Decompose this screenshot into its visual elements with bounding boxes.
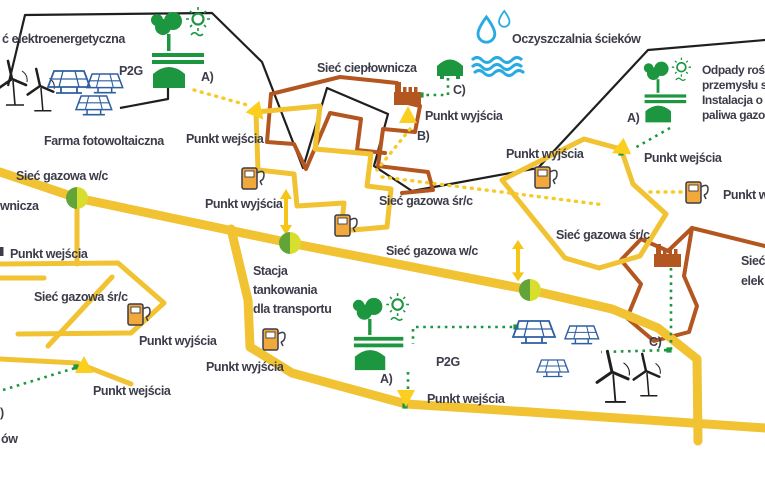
wind-turbine-icon bbox=[597, 351, 629, 402]
label-exit-point: Punkt wyjścia bbox=[139, 334, 218, 348]
label-entry-point: Punkt wejścia bbox=[93, 384, 172, 398]
label-station-line3: dla transportu bbox=[253, 302, 331, 316]
label-exit-point: Punkt wyjścia bbox=[425, 109, 504, 123]
label-heat-fragment: wnicza bbox=[0, 199, 40, 213]
gas-pump-icon bbox=[535, 167, 557, 188]
label-src-network-right: Sieć gazowa śr/c bbox=[556, 228, 650, 242]
label-entry-point: Punkt wejścia bbox=[644, 151, 723, 165]
label-waste-line4: paliwa gazo bbox=[702, 108, 765, 122]
gas-pump-icon bbox=[263, 329, 285, 350]
label-src-network-center: Sieć gazowa śr/c bbox=[379, 194, 473, 208]
water-drop-icon bbox=[478, 17, 495, 42]
sewage-plant-icon bbox=[437, 60, 463, 80]
label-entry-point: Punkt wejścia bbox=[10, 247, 89, 261]
label-waste-line3: Instalacja o bbox=[702, 93, 763, 107]
diagram-canvas: ć elektroenergetyczna P2G Farma fotowolt… bbox=[0, 0, 765, 496]
solar-panel-icon bbox=[537, 360, 569, 377]
gas-wc-trunk-top bbox=[0, 172, 698, 441]
water-drop-icon bbox=[499, 11, 510, 27]
green-terminal-icon bbox=[666, 347, 671, 352]
gas-pump-icon bbox=[242, 168, 264, 189]
label-marker-a-right: A) bbox=[627, 111, 640, 125]
label-entry-point: Punkt wejścia bbox=[427, 392, 506, 406]
label-pv-farm: Farma fotowoltaiczna bbox=[44, 134, 165, 148]
wind-turbine-icon bbox=[28, 69, 55, 111]
label-marker-b-top: B) bbox=[417, 129, 430, 143]
label-marker-a-top: A) bbox=[201, 70, 214, 84]
label-entry-point: Punkt wejścia bbox=[186, 132, 265, 146]
gas-pump-icon bbox=[686, 182, 708, 203]
network-node-icon bbox=[66, 187, 88, 209]
double-arrow-icon bbox=[512, 240, 524, 281]
label-p2g-bottom: P2G bbox=[436, 355, 460, 369]
label-electric-right-line2: elek bbox=[741, 274, 764, 288]
label-fragment-ow: ów bbox=[1, 432, 18, 446]
label-station-line1: Stacja bbox=[253, 264, 289, 278]
label-fragment-paren: ) bbox=[0, 406, 4, 420]
label-electric-right-line1: Sieć bbox=[741, 254, 765, 268]
label-exit-point: Punkt wyjścia bbox=[205, 197, 284, 211]
entry-exit-triangle-icon bbox=[399, 106, 417, 123]
network-node-icon bbox=[519, 279, 541, 301]
label-exit-point: Punkt wyjścia bbox=[506, 147, 585, 161]
gas-network-diagram: ć elektroenergetyczna P2G Farma fotowolt… bbox=[0, 0, 765, 496]
solar-panel-icon bbox=[87, 74, 123, 93]
label-marker-c-top: C) bbox=[453, 83, 466, 97]
solar-panel-icon bbox=[48, 71, 90, 93]
factory-icon bbox=[654, 244, 681, 267]
wind-turbine-icon bbox=[0, 61, 27, 105]
label-electric-network: ć elektroenergetyczna bbox=[2, 32, 126, 46]
waves-icon bbox=[472, 58, 524, 76]
solar-panel-icon bbox=[76, 96, 112, 115]
network-node-icon bbox=[279, 232, 301, 254]
entry-exit-triangle-icon bbox=[608, 138, 631, 161]
label-wc-network-left: Sieć gazowa w/c bbox=[16, 169, 108, 183]
gas-pump-icon bbox=[335, 215, 357, 236]
biogas-plant-icon bbox=[644, 58, 691, 123]
label-waste-line2: przemysłu s bbox=[702, 78, 765, 92]
label-wc-network-center: Sieć gazowa w/c bbox=[386, 244, 478, 258]
biogas-plant-icon bbox=[353, 293, 409, 370]
label-p2g-top: P2G bbox=[119, 64, 143, 78]
solar-panel-icon bbox=[565, 326, 599, 344]
solar-panel-icon bbox=[513, 321, 555, 343]
label-exit-point: Punkt wyjścia bbox=[206, 360, 285, 374]
label-src-network-left: Sieć gazowa śr/c bbox=[34, 290, 128, 304]
cut-marker-fragment bbox=[0, 247, 4, 256]
label-exit-point-cut: Punkt wyj bbox=[723, 188, 765, 202]
factory-icon bbox=[394, 82, 421, 105]
pv-to-p2g-line bbox=[120, 88, 168, 108]
label-marker-a-bottom: A) bbox=[380, 372, 393, 386]
label-heat-network: Sieć ciepłownicza bbox=[317, 61, 418, 75]
wind-turbine-icon bbox=[634, 354, 661, 396]
label-station-line2: tankowania bbox=[253, 283, 319, 297]
double-arrow-icon bbox=[280, 189, 292, 235]
label-marker-c-right: C) bbox=[649, 335, 662, 349]
label-sewage-plant: Oczyszczalnia ścieków bbox=[512, 32, 641, 46]
label-waste-line1: Odpady roś bbox=[702, 63, 765, 77]
